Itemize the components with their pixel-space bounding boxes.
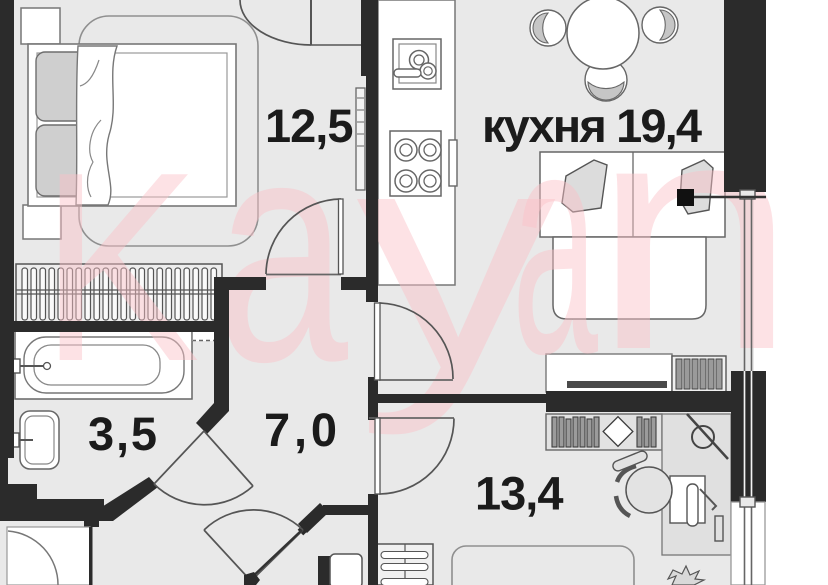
svg-text:3,5: 3,5	[88, 407, 156, 460]
svg-text:K: K	[40, 117, 200, 418]
svg-text:13,4: 13,4	[475, 467, 563, 520]
svg-text:12,5: 12,5	[265, 99, 352, 152]
svg-text:кухня 19,4: кухня 19,4	[482, 99, 702, 152]
svg-text:7,0: 7,0	[264, 403, 336, 456]
